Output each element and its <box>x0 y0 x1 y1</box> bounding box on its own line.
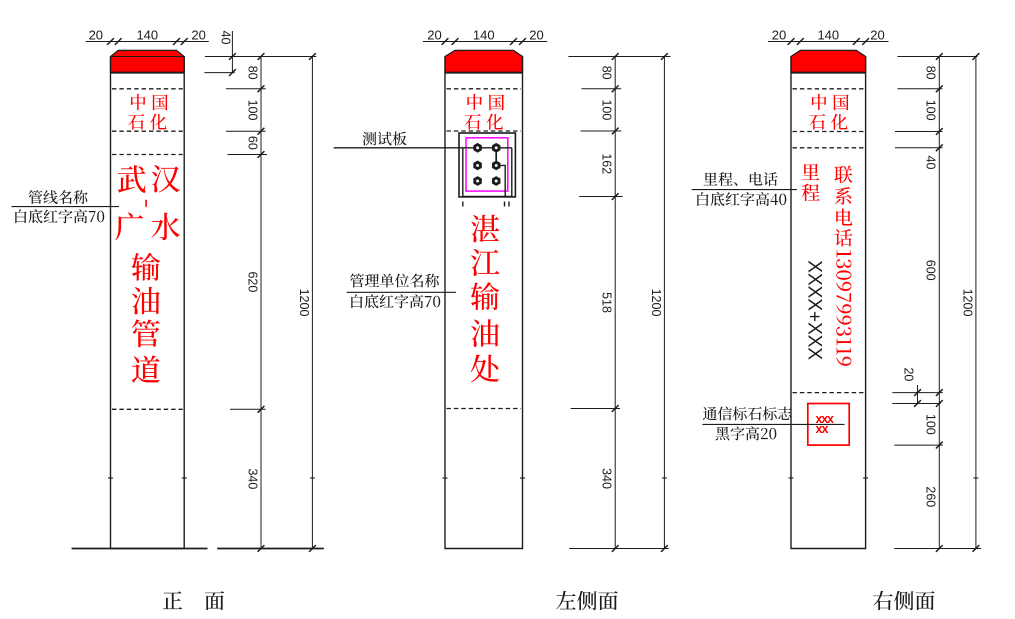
svg-text:40: 40 <box>218 31 232 45</box>
svg-text:140: 140 <box>136 27 158 42</box>
svg-text:140: 140 <box>473 27 495 42</box>
svg-text:100: 100 <box>924 100 938 121</box>
svg-text:20: 20 <box>427 27 441 42</box>
svg-text:100: 100 <box>245 100 259 121</box>
svg-text:1200: 1200 <box>960 289 974 317</box>
svg-text:20: 20 <box>870 27 884 42</box>
svg-text:100: 100 <box>600 99 614 120</box>
svg-text:1200: 1200 <box>649 289 663 317</box>
svg-text:60: 60 <box>245 136 259 150</box>
svg-text:80: 80 <box>245 66 259 80</box>
svg-text:80: 80 <box>924 66 938 80</box>
svg-text:340: 340 <box>245 468 259 489</box>
svg-text:1200: 1200 <box>297 289 311 317</box>
svg-text:600: 600 <box>924 260 938 281</box>
svg-text:20: 20 <box>191 27 205 42</box>
svg-text:80: 80 <box>600 66 614 80</box>
svg-text:518: 518 <box>600 292 614 313</box>
svg-text:20: 20 <box>529 27 543 42</box>
svg-text:340: 340 <box>600 468 614 489</box>
svg-text:140: 140 <box>817 27 839 42</box>
svg-text:20: 20 <box>89 27 103 42</box>
svg-text:20: 20 <box>901 367 915 381</box>
svg-text:162: 162 <box>600 153 614 174</box>
svg-text:XXXX+XXX: XXXX+XXX <box>803 260 824 360</box>
svg-text:40: 40 <box>924 156 938 170</box>
svg-text:20: 20 <box>772 27 786 42</box>
svg-text:100: 100 <box>924 414 938 435</box>
svg-text:260: 260 <box>924 486 938 507</box>
svg-text:620: 620 <box>245 271 259 292</box>
